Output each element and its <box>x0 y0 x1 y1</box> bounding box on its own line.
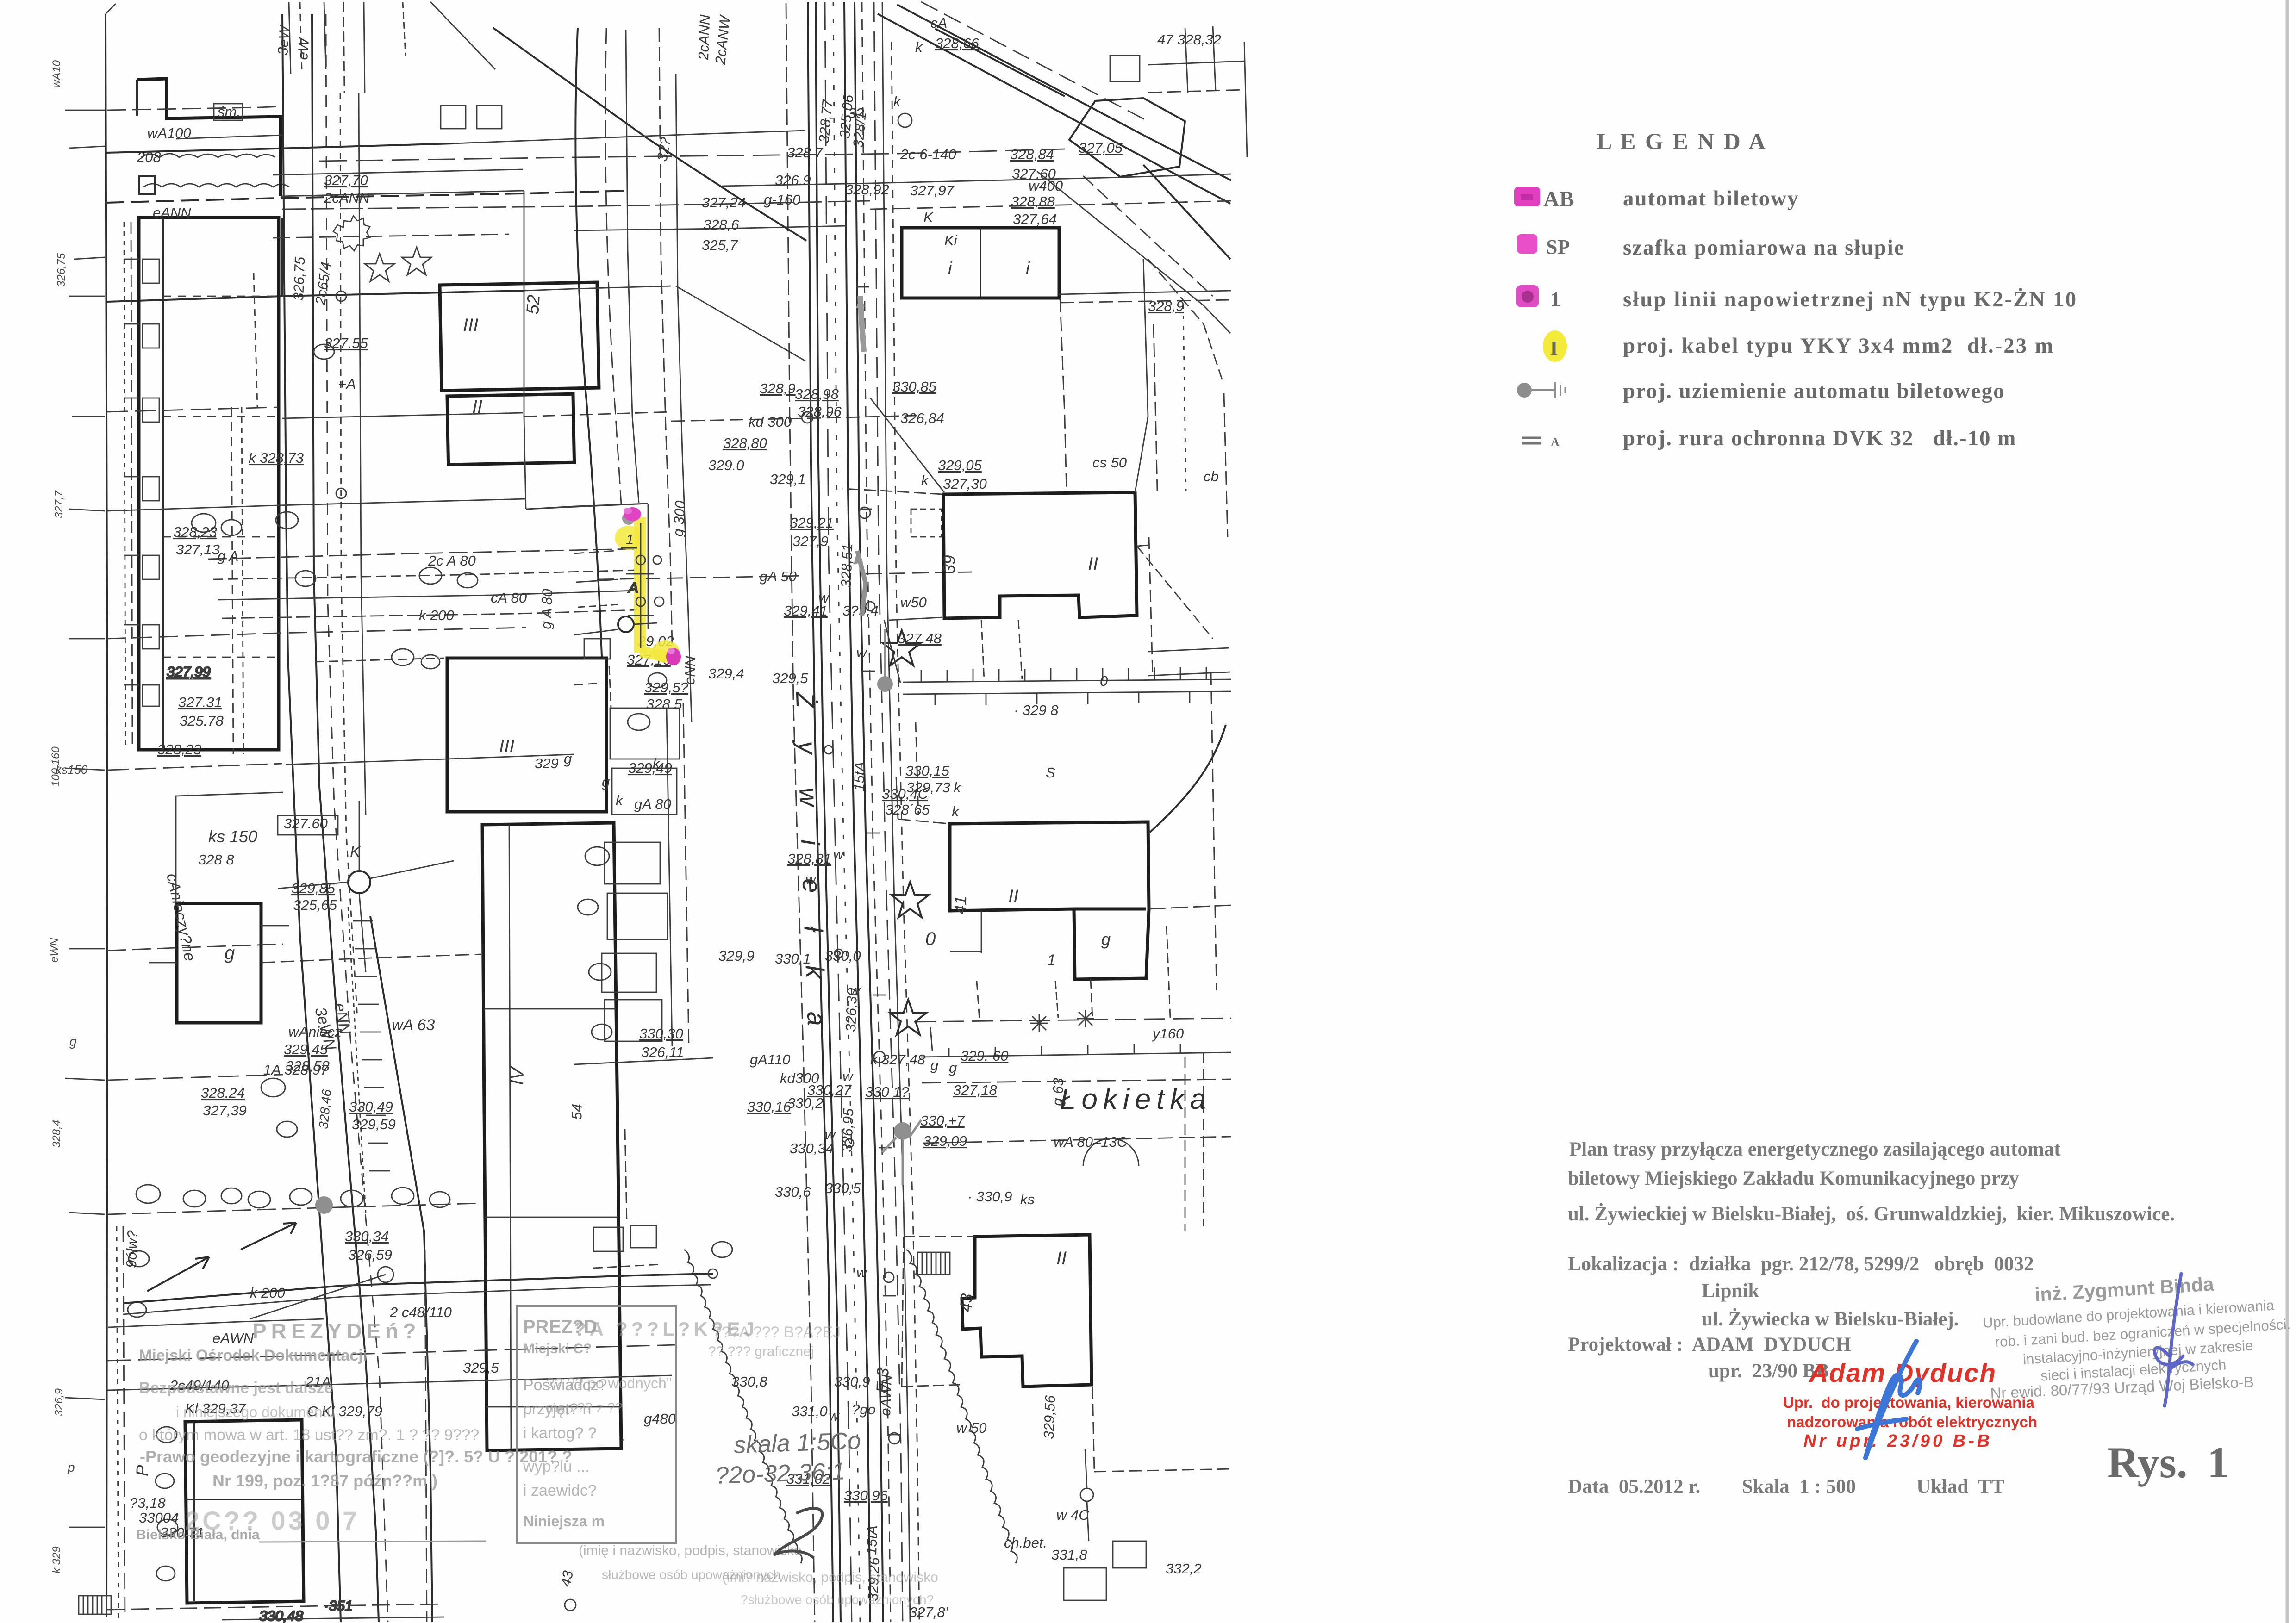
svg-text:śm.: śm. <box>218 104 241 120</box>
svg-text:gA 50: gA 50 <box>760 568 797 585</box>
svg-text:ul. Żywieckiej w Bielsku-Białe: ul. Żywieckiej w Bielsku-Białej, oś. Gru… <box>1568 1203 2175 1225</box>
svg-text:43: 43 <box>557 1569 576 1588</box>
svg-text:327,97: 327,97 <box>910 182 955 199</box>
svg-text:1: 1 <box>2207 1438 2229 1487</box>
svg-text:w: w <box>856 1264 868 1281</box>
svg-text:330,16: 330,16 <box>747 1099 792 1115</box>
svg-text:+A: +A <box>338 376 356 392</box>
svg-text:325,7: 325,7 <box>702 237 738 253</box>
svg-text:wA100: wA100 <box>147 125 191 141</box>
svg-text:329,21: 329,21 <box>790 515 834 531</box>
svg-text:Rys.: Rys. <box>2107 1438 2188 1487</box>
svg-text:wA10: wA10 <box>50 60 63 88</box>
svg-text:Data 05.2012 r.: Data 05.2012 r. <box>1568 1476 1700 1498</box>
svg-text:w: w <box>856 644 868 660</box>
svg-text:327,18: 327,18 <box>953 1082 998 1098</box>
svg-text:g A: g A <box>218 548 238 564</box>
svg-text:328,9: 328,9 <box>1148 298 1184 314</box>
svg-text:p: p <box>67 1460 75 1474</box>
svg-text:326,75: 326,75 <box>55 253 68 287</box>
svg-text:w: w <box>805 871 817 887</box>
svg-text:33004: 33004 <box>139 1510 179 1526</box>
svg-text:Bielsko-Biała, dnia: Bielsko-Biała, dnia <box>136 1527 260 1542</box>
svg-text:43: 43 <box>956 1293 976 1313</box>
svg-text:proj. kabel typu YKY 3x4 mm2: proj. kabel typu YKY 3x4 mm2 dł.-23 m <box>1623 334 2054 358</box>
svg-text:327,30: 327,30 <box>943 476 987 492</box>
svg-text:ul. Żywiecka w Bielsku-Białej.: ul. Żywiecka w Bielsku-Białej. <box>1702 1308 1959 1330</box>
svg-text:0: 0 <box>925 929 936 949</box>
svg-text:g A 80: g A 80 <box>538 589 555 629</box>
svg-text:Ki: Ki <box>944 232 958 249</box>
svg-text:327.55: 327.55 <box>324 335 368 351</box>
svg-text:39: 39 <box>939 555 959 574</box>
svg-text:g: g <box>930 1057 938 1073</box>
svg-text:3?: 3? <box>848 105 864 121</box>
svg-text:Bezpodstawne jest dalsze: Bezpodstawne jest dalsze <box>139 1379 333 1397</box>
svg-text:2c A 80: 2c A 80 <box>428 553 476 569</box>
svg-text:i zaewidc?: i zaewidc? <box>523 1482 597 1499</box>
svg-text:Plan trasy przyłącza energetyc: Plan trasy przyłącza energetycznego zasi… <box>1569 1138 2061 1160</box>
svg-text:330,2: 330,2 <box>787 1095 824 1111</box>
svg-text:P: P <box>132 1465 152 1476</box>
svg-text:?3,18: ?3,18 <box>130 1495 166 1511</box>
svg-text:ch.bet.: ch.bet. <box>1004 1535 1047 1551</box>
svg-text:g: g <box>564 751 572 767</box>
svg-text:329. 60: 329. 60 <box>961 1048 1008 1064</box>
svg-text:słup linii napowietrznej nN ty: słup linii napowietrznej nN typu K2-ŻN 1… <box>1623 287 2078 311</box>
svg-text:·351: ·351 <box>324 1598 353 1614</box>
svg-text:2cANN: 2cANN <box>324 190 370 206</box>
svg-text:330,5: 330,5 <box>825 1180 861 1196</box>
svg-text:327,24: 327,24 <box>702 194 746 211</box>
svg-text:k: k <box>952 803 960 820</box>
svg-text:k 329: k 329 <box>50 1546 63 1573</box>
svg-text:329,45: 329,45 <box>284 1041 328 1057</box>
svg-text:biletowy Miejskiego Zakładu Ko: biletowy Miejskiego Zakładu Komunikacyjn… <box>1568 1168 2019 1189</box>
svg-text:327.60: 327.60 <box>284 815 328 832</box>
svg-text:Układ TT: Układ TT <box>1916 1476 2005 1498</box>
svg-text:3eW: 3eW <box>275 24 293 56</box>
svg-text:proj. uziemienie automatu bile: proj. uziemienie automatu biletowego <box>1623 379 2005 403</box>
svg-text:-Prawo geodezyjne i kartografi: -Prawo geodezyjne i kartograficzne (?]?.… <box>140 1447 572 1466</box>
svg-text:327.31: 327.31 <box>178 694 222 710</box>
svg-text:15tA: 15tA <box>863 1525 880 1555</box>
svg-text:329,59: 329,59 <box>352 1116 396 1132</box>
svg-text:328,66: 328,66 <box>935 35 980 51</box>
svg-text:330,30: 330,30 <box>639 1026 683 1042</box>
svg-text:330,34: 330,34 <box>790 1140 834 1157</box>
svg-text:g 300: g 300 <box>670 500 688 537</box>
svg-text:o którym mowa w art. 18 ust??: o którym mowa w art. 18 ust?? zm?. 1 ? ?… <box>139 1426 479 1444</box>
svg-text:k 328,73: k 328,73 <box>249 450 304 466</box>
svg-text:III: III <box>463 315 478 336</box>
svg-text:przyjęt? n: przyjęt? n <box>523 1400 591 1418</box>
svg-text:gA110: gA110 <box>750 1051 790 1068</box>
svg-text:330,34: 330,34 <box>345 1228 389 1244</box>
svg-text:eNN: eNN <box>681 655 699 685</box>
svg-text:Miejski C?: Miejski C? <box>523 1341 592 1356</box>
svg-text:II: II <box>472 397 482 417</box>
svg-text:PREZ?D: PREZ?D <box>523 1317 597 1337</box>
svg-text:kd 300: kd 300 <box>749 414 792 430</box>
svg-text:327,70: 327,70 <box>324 172 368 188</box>
svg-text:328,88: 328,88 <box>1011 193 1055 210</box>
svg-text:330,96: 330,96 <box>844 1487 888 1504</box>
svg-text:Miejski Ośrodek Dokumentacji: Miejski Ośrodek Dokumentacji <box>139 1347 367 1364</box>
svg-text:III: III <box>499 736 514 757</box>
svg-text:327.48: 327.48 <box>898 630 942 647</box>
svg-text:ks 150: ks 150 <box>208 827 257 846</box>
svg-text:9ółw?: 9ółw? <box>123 1230 141 1268</box>
svg-text:· 329 8: · 329 8 <box>1014 702 1059 718</box>
svg-text:g: g <box>1101 930 1111 949</box>
svg-text:k 200: k 200 <box>250 1285 285 1301</box>
svg-text:328,98: 328,98 <box>795 386 839 402</box>
svg-text:Projektował : ADAM DYDUCH: Projektował : ADAM DYDUCH <box>1568 1334 1851 1356</box>
svg-text:wA 63: wA 63 <box>392 1016 435 1034</box>
svg-text:IV: IV <box>507 1066 528 1086</box>
svg-text:47 328,32: 47 328,32 <box>1157 31 1221 48</box>
svg-text:327,13: 327,13 <box>176 541 220 558</box>
svg-text:g: g <box>602 774 610 790</box>
svg-text:328,58: 328,58 <box>286 1058 330 1074</box>
svg-text:g480: g480 <box>644 1411 676 1427</box>
svg-text:k: k <box>616 792 624 808</box>
svg-text:i niniejszego dokumentu: i niniejszego dokumentu <box>176 1404 335 1420</box>
svg-text:K: K <box>923 209 934 225</box>
svg-text:wyp?lu ...: wyp?lu ... <box>523 1458 590 1475</box>
svg-text:329,85: 329,85 <box>291 880 336 896</box>
svg-text:g-160: g-160 <box>764 192 800 208</box>
svg-text:326,84: 326,84 <box>900 410 944 426</box>
svg-text:Niniejsza m: Niniejsza m <box>523 1513 605 1530</box>
svg-text:PREZYDEń?: PREZYDEń? <box>252 1319 420 1343</box>
svg-text:I: I <box>1550 336 1558 360</box>
svg-text:330,6: 330,6 <box>775 1184 811 1200</box>
svg-text:?? ??? graficznej: ?? ??? graficznej <box>708 1344 814 1359</box>
svg-text:2cANN: 2cANN <box>695 14 713 61</box>
svg-text:SP: SP <box>1546 236 1570 258</box>
svg-text:329,05: 329,05 <box>938 457 982 473</box>
svg-text:325,65: 325,65 <box>293 897 337 913</box>
svg-text:proj. rura ochronna DVK 32 d: proj. rura ochronna DVK 32 dł.-10 m <box>1623 426 2016 450</box>
svg-text:329,4: 329,4 <box>708 665 744 682</box>
svg-text:eANN: eANN <box>153 205 191 221</box>
svg-text:(imię i nazwisko, podpis, stan: (imię i nazwisko, podpis, stanowisko <box>579 1543 802 1558</box>
svg-text:nadzorowania robót elektryczny: nadzorowania robót elektrycznych <box>1787 1413 2037 1430</box>
svg-text:330 1?: 330 1? <box>865 1084 910 1100</box>
svg-text:328,96: 328,96 <box>798 404 842 420</box>
svg-text:k: k <box>653 755 661 771</box>
svg-text:330,+7: 330,+7 <box>920 1113 965 1129</box>
svg-text:52: 52 <box>523 294 544 315</box>
svg-text:ks: ks <box>1020 1191 1035 1207</box>
svg-text:328,9: 328,9 <box>760 380 796 397</box>
svg-text:II: II <box>1088 554 1098 574</box>
svg-text:cA: cA <box>930 15 947 31</box>
svg-text:327,39: 327,39 <box>203 1102 247 1119</box>
svg-text:15tA: 15tA <box>851 761 868 791</box>
svg-text:eWN: eWN <box>48 938 61 963</box>
svg-text:328,92: 328,92 <box>845 181 889 198</box>
svg-text:AB: AB <box>1543 187 1574 211</box>
svg-text:329: 329 <box>535 755 559 771</box>
svg-text:automat biletowy: automat biletowy <box>1623 187 1799 211</box>
svg-text:332,2: 332,2 <box>1166 1561 1202 1577</box>
svg-text:eW: eW <box>294 37 312 61</box>
svg-text:329,56: 329,56 <box>1041 1395 1058 1440</box>
svg-text:gA 80: gA 80 <box>634 796 671 812</box>
svg-text:Nr upr. 23/90 B-B: Nr upr. 23/90 B-B <box>1803 1431 1992 1451</box>
svg-text:1: 1 <box>1550 288 1561 311</box>
svg-text:1: 1 <box>1047 951 1056 969</box>
svg-text:327,9: 327,9 <box>792 533 829 549</box>
svg-text:329,9: 329,9 <box>718 948 755 964</box>
svg-text:w400: w400 <box>1029 178 1063 194</box>
svg-text:329,09: 329,09 <box>923 1133 967 1149</box>
svg-text:326,30: 326,30 <box>842 988 860 1032</box>
svg-text:327,7: 327,7 <box>53 490 65 518</box>
svg-text:330,15: 330,15 <box>905 763 950 779</box>
svg-text:327,99: 327,99 <box>167 664 211 680</box>
svg-text:330,8: 330,8 <box>731 1374 767 1390</box>
svg-text:328,81: 328,81 <box>787 851 831 867</box>
svg-text:330,1: 330,1 <box>775 951 811 967</box>
svg-text:326,75: 326,75 <box>290 256 308 301</box>
svg-text:wA 80–13C: wA 80–13C <box>1054 1134 1128 1150</box>
svg-text:k 327,48: k 327,48 <box>870 1051 926 1068</box>
svg-text:330,85: 330,85 <box>892 379 937 395</box>
svg-text:k: k <box>893 93 901 110</box>
svg-text:II: II <box>1056 1248 1067 1269</box>
svg-text:w: w <box>825 1126 836 1143</box>
svg-text:k: k <box>915 39 923 55</box>
svg-text:326,59: 326,59 <box>348 1247 392 1263</box>
svg-text:328 7: 328 7 <box>787 144 824 161</box>
svg-text:328,23: 328,23 <box>173 524 217 540</box>
svg-text:330,0: 330,0 <box>825 948 861 964</box>
svg-text:K: K <box>350 843 361 861</box>
svg-text:327,05: 327,05 <box>1079 140 1123 156</box>
svg-text:II: II <box>1008 886 1018 907</box>
svg-text:E 3: E 3 <box>873 1368 892 1393</box>
svg-text:326,9: 326,9 <box>53 1388 65 1416</box>
svg-text:328 8: 328 8 <box>198 852 234 868</box>
svg-text:w 4C: w 4C <box>1056 1507 1089 1523</box>
svg-text:326,95: 326,95 <box>839 1108 856 1153</box>
svg-text:S: S <box>1046 765 1055 781</box>
svg-text:328´65: 328´65 <box>885 802 930 818</box>
svg-text:cs 50: cs 50 <box>1092 454 1127 471</box>
svg-text:328,80: 328,80 <box>723 435 767 451</box>
svg-text:Skala 1 : 500: Skala 1 : 500 <box>1742 1476 1856 1498</box>
svg-text:328,4: 328,4 <box>50 1120 63 1148</box>
svg-text:Nr 199, poz. 1?87 późn??m ): Nr 199, poz. 1?87 późn??m ) <box>212 1471 437 1490</box>
svg-text:208: 208 <box>137 149 161 165</box>
svg-text:g: g <box>69 1034 77 1049</box>
svg-text:i kartog? ?: i kartog? ? <box>523 1424 597 1442</box>
svg-text:Łokietka: Łokietka <box>1060 1083 1211 1115</box>
svg-text:eAWN: eAWN <box>212 1330 254 1346</box>
svg-text:g: g <box>225 943 235 963</box>
svg-text:A: A <box>628 579 638 596</box>
svg-text:·: · <box>620 1431 625 1447</box>
svg-text:szafka pomiarowa na słupie: szafka pomiarowa na słupie <box>1623 236 1905 260</box>
svg-text:331,8: 331,8 <box>1051 1547 1087 1563</box>
svg-text:ks150: ks150 <box>56 763 88 777</box>
svg-text:331,0: 331,0 <box>792 1403 828 1419</box>
svg-text:g: g <box>949 1060 957 1076</box>
svg-text:328,6: 328,6 <box>703 217 739 233</box>
svg-text:329,5: 329,5 <box>772 670 808 686</box>
svg-text:?służbowe osób upoważnionych?: ?służbowe osób upoważnionych? <box>741 1592 934 1607</box>
svg-text:330,9: 330,9 <box>834 1374 870 1390</box>
svg-text:54: 54 <box>568 1104 585 1120</box>
svg-text:?go: ?go <box>852 1401 876 1418</box>
svg-text:325.78: 325.78 <box>180 713 224 729</box>
svg-text:328 5: 328 5 <box>646 696 682 712</box>
svg-text:Poswiadcz?: Poswiadcz? <box>523 1376 607 1394</box>
svg-text:???A ??? B?A?EJ: ???A ??? B?A?EJ <box>713 1324 841 1341</box>
svg-text:Lipnik: Lipnik <box>1702 1280 1759 1302</box>
svg-text:326.9: 326.9 <box>775 172 811 188</box>
svg-text:cA 80: cA 80 <box>491 590 527 606</box>
svg-text:328,23: 328,23 <box>157 741 201 758</box>
svg-text:329.0: 329.0 <box>708 457 744 473</box>
svg-text:L E G E N D A: L E G E N D A <box>1597 128 1767 154</box>
svg-text:y160: y160 <box>1152 1026 1184 1042</box>
svg-text:cb: cb <box>1204 468 1219 485</box>
svg-text:k 200: k 200 <box>419 607 454 623</box>
svg-text:330,48: 330,48 <box>259 1608 304 1623</box>
svg-text:w: w <box>833 846 845 862</box>
svg-text:328,51: 328,51 <box>838 543 855 588</box>
svg-text:329,1: 329,1 <box>770 471 806 487</box>
svg-text:41: 41 <box>950 895 970 914</box>
svg-text:Lokalizacja : działka pgr. 2: Lokalizacja : działka pgr. 212/78, 5299/… <box>1568 1253 2034 1275</box>
svg-text:1: 1 <box>626 531 634 547</box>
svg-text:328,84: 328,84 <box>1010 146 1054 162</box>
svg-text:329,49: 329,49 <box>628 760 672 776</box>
svg-text:w: w <box>829 1408 840 1424</box>
svg-text:w 50: w 50 <box>956 1420 986 1436</box>
svg-text:wAniecz: wAniecz <box>288 1024 342 1040</box>
svg-text:326,11: 326,11 <box>641 1044 684 1060</box>
svg-text:328.24: 328.24 <box>201 1085 245 1101</box>
svg-text:skala 1:5Co: skala 1:5Co <box>733 1427 861 1459</box>
svg-text:A: A <box>1551 435 1560 449</box>
svg-text:(imi? nazwisko, podpis, stanow: (imi? nazwisko, podpis, stanowisko <box>722 1570 938 1585</box>
svg-text:2 c48/110: 2 c48/110 <box>389 1304 452 1320</box>
svg-text:330,49: 330,49 <box>349 1099 393 1115</box>
svg-text:327,64: 327,64 <box>1013 211 1057 227</box>
svg-text:2c 6-140: 2c 6-140 <box>900 146 956 162</box>
svg-text:w: w <box>818 590 830 606</box>
svg-text:330,4C: 330,4C <box>882 786 929 802</box>
svg-text:329,5: 329,5 <box>463 1360 499 1376</box>
svg-text:· 330,9: · 330,9 <box>967 1188 1012 1205</box>
svg-text:?2o-32-36:1: ?2o-32-36:1 <box>715 1458 845 1489</box>
svg-text:w50: w50 <box>900 594 927 610</box>
svg-text:k: k <box>954 779 961 796</box>
svg-text:0: 0 <box>1100 673 1108 689</box>
svg-text:k: k <box>921 472 929 488</box>
